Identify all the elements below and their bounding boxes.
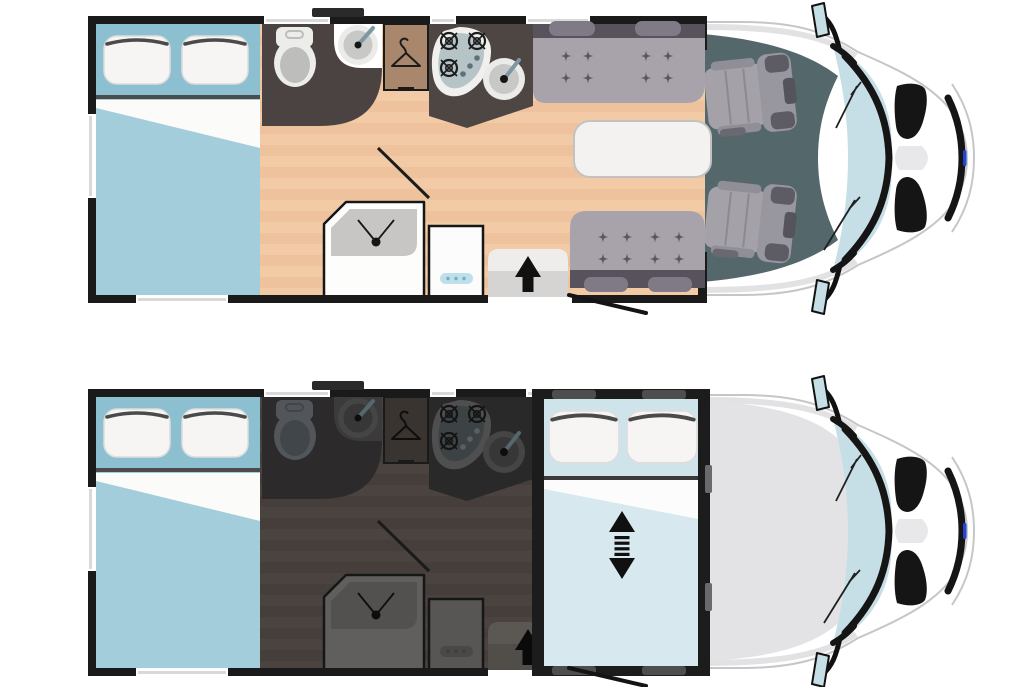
drop-down-bed (532, 389, 712, 676)
floorplan-day (0, 0, 1024, 318)
cab-interior-day (702, 34, 838, 282)
floorplan-canvas (0, 0, 1024, 687)
floorplan-night (0, 373, 1024, 687)
